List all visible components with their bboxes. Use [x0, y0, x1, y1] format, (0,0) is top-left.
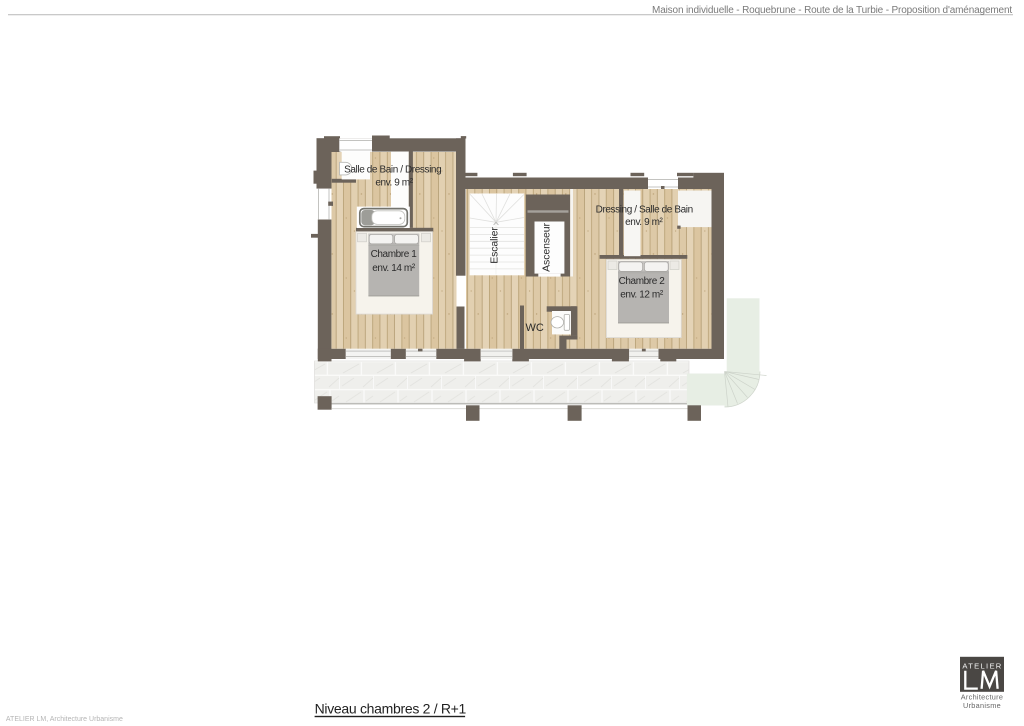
svg-text:Niveau chambres 2 / R+1: Niveau chambres 2 / R+1: [315, 701, 467, 717]
svg-text:Chambre 1: Chambre 1: [371, 249, 418, 260]
svg-text:env. 9 m²: env. 9 m²: [625, 217, 663, 228]
svg-text:Maison individuelle - Roquebru: Maison individuelle - Roquebrune - Route…: [652, 5, 1012, 16]
svg-text:Chambre 2: Chambre 2: [619, 276, 666, 287]
svg-text:Ascenseur: Ascenseur: [540, 223, 552, 272]
svg-text:Escalier: Escalier: [489, 227, 501, 264]
svg-text:ATELIER LM, Architecture Urban: ATELIER LM, Architecture Urbanisme: [6, 716, 123, 723]
svg-text:WC: WC: [526, 322, 544, 334]
svg-text:Salle de Bain / Dressing: Salle de Bain / Dressing: [344, 165, 441, 176]
svg-text:env. 14 m²: env. 14 m²: [372, 263, 416, 274]
svg-text:Dressing / Salle de Bain: Dressing / Salle de Bain: [596, 205, 693, 216]
svg-text:env. 9 m²: env. 9 m²: [375, 178, 413, 189]
svg-text:ATELIER: ATELIER: [962, 661, 1002, 670]
svg-text:env. 12 m²: env. 12 m²: [620, 290, 664, 301]
svg-text:Urbanisme: Urbanisme: [963, 701, 1001, 710]
